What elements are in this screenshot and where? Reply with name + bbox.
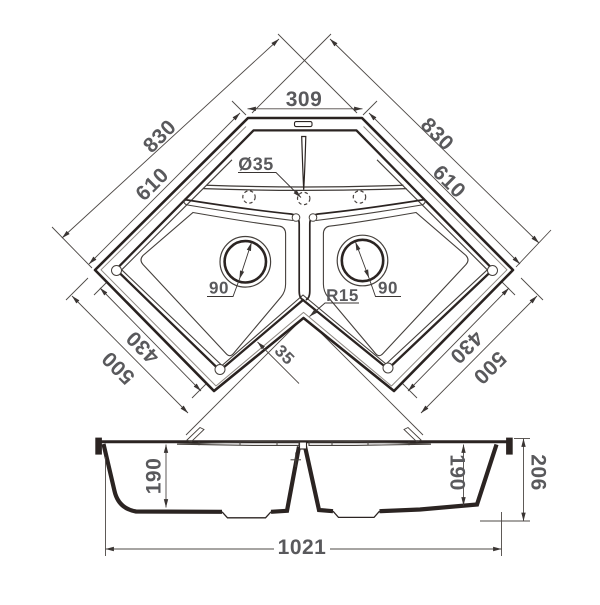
svg-text:206: 206 — [527, 454, 550, 491]
svg-text:190: 190 — [446, 454, 469, 491]
svg-text:90: 90 — [378, 279, 398, 298]
svg-text:309: 309 — [286, 88, 323, 111]
svg-text:Ø35: Ø35 — [238, 154, 274, 174]
svg-text:190: 190 — [143, 458, 166, 495]
svg-text:830: 830 — [416, 113, 458, 155]
svg-text:830: 830 — [139, 115, 181, 157]
svg-text:90: 90 — [209, 279, 229, 298]
svg-text:1021: 1021 — [278, 536, 327, 559]
svg-text:35: 35 — [271, 341, 299, 369]
svg-text:R15: R15 — [326, 286, 359, 305]
